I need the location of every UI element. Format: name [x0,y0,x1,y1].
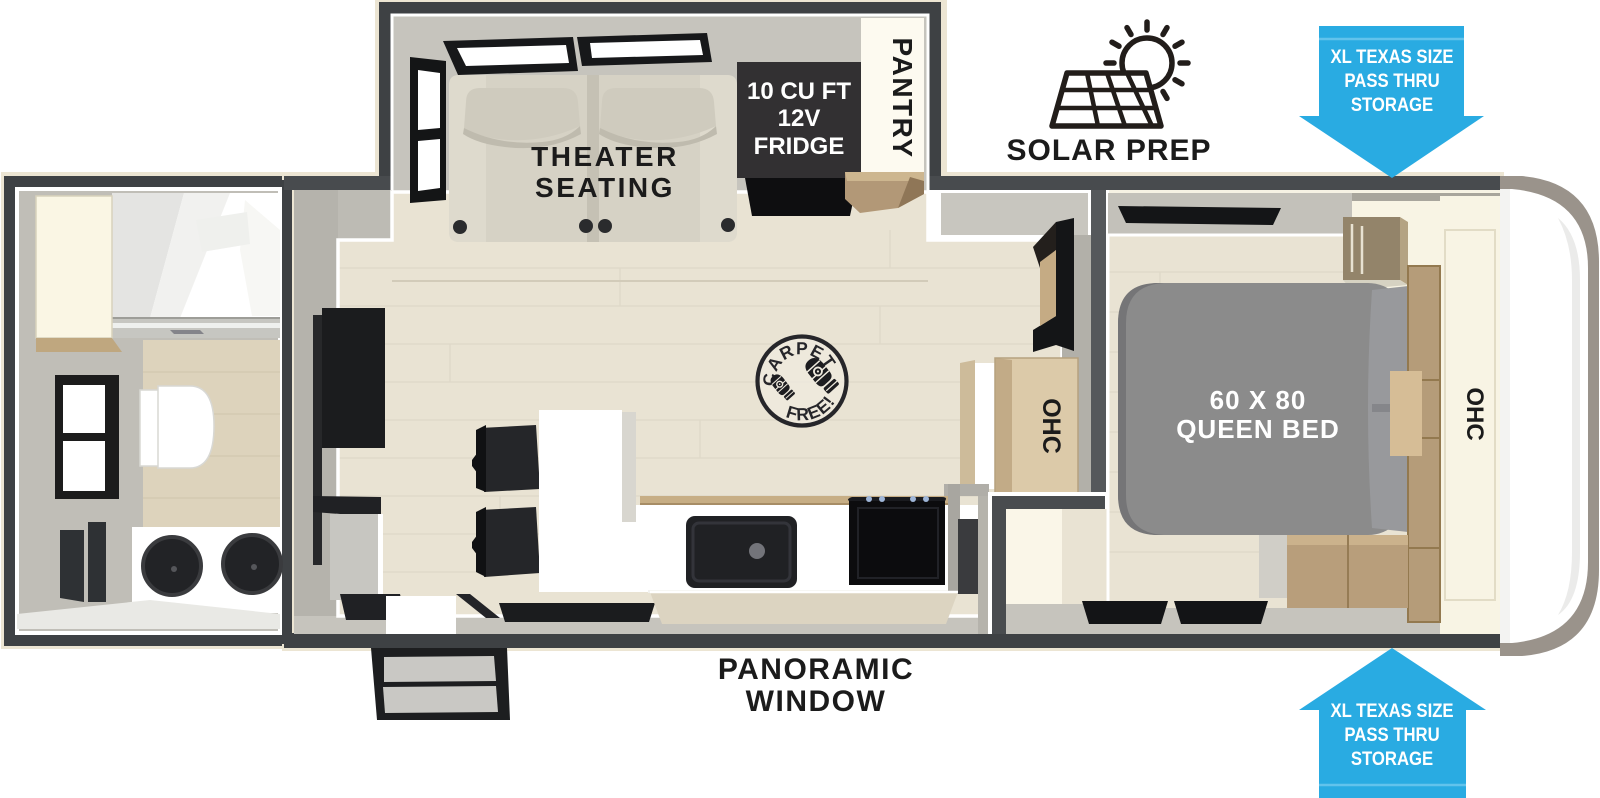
svg-text:12V: 12V [778,105,821,132]
svg-text:QUEEN BED: QUEEN BED [1176,414,1340,444]
svg-text:SOLAR PREP: SOLAR PREP [1006,134,1211,167]
svg-text:PASS THRU: PASS THRU [1344,70,1439,91]
svg-text:STORAGE: STORAGE [1351,748,1433,769]
svg-text:XL TEXAS SIZE: XL TEXAS SIZE [1330,46,1453,67]
svg-text:PANORAMIC: PANORAMIC [718,653,914,686]
svg-text:FRIDGE: FRIDGE [754,133,845,160]
svg-text:THEATER: THEATER [531,141,679,172]
svg-text:SEATING: SEATING [535,172,675,203]
svg-text:OHC: OHC [1037,398,1065,454]
svg-text:OHC: OHC [1461,387,1488,440]
svg-text:PANTRY: PANTRY [887,38,918,159]
svg-text:PASS THRU: PASS THRU [1344,724,1439,745]
svg-text:60 X 80: 60 X 80 [1210,385,1307,415]
svg-text:XL TEXAS SIZE: XL TEXAS SIZE [1330,700,1453,721]
svg-text:STORAGE: STORAGE [1351,94,1433,115]
svg-text:WINDOW: WINDOW [746,685,887,718]
svg-text:10 CU FT: 10 CU FT [747,78,851,105]
